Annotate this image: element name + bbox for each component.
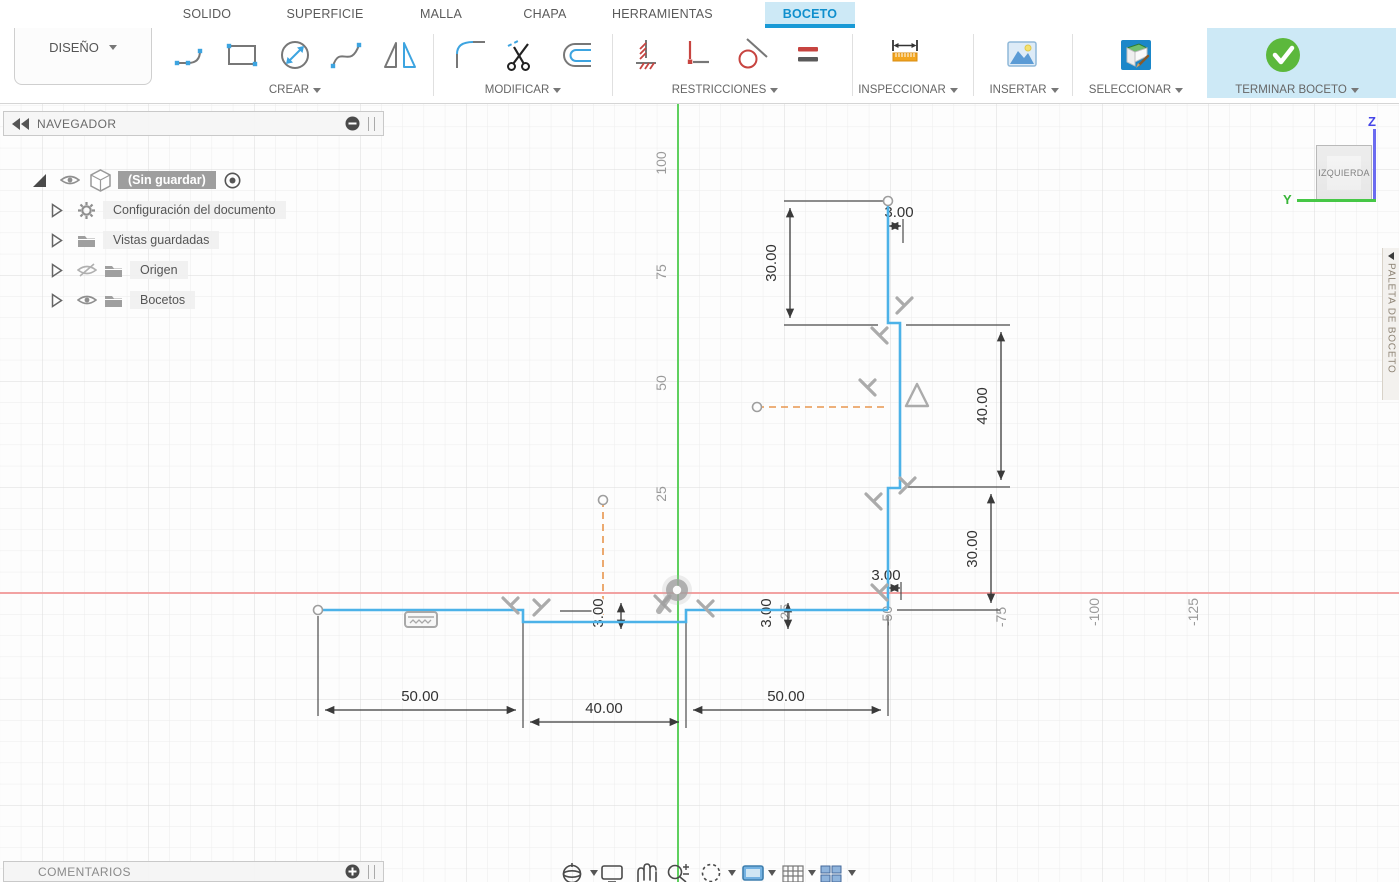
tree-item-label[interactable]: Vistas guardadas — [103, 231, 219, 249]
mirror-tool-button[interactable] — [378, 32, 422, 78]
circle-tool-button[interactable] — [273, 32, 317, 78]
line-tool-button[interactable] — [168, 32, 212, 78]
chevron-down-icon — [553, 88, 561, 93]
group-label-restricciones[interactable]: RESTRICCIONES — [645, 84, 805, 100]
x-tick-m25: -25 — [777, 604, 793, 624]
tree-row-saved-views[interactable]: Vistas guardadas — [51, 228, 219, 252]
select-tool-button[interactable] — [1114, 32, 1158, 78]
viewcube-y-label: Y — [1283, 192, 1292, 207]
viewcube-y-axis — [1297, 199, 1376, 202]
y-tick-75: 75 — [653, 264, 669, 280]
trim-tool-icon — [504, 36, 542, 74]
collapsed-arrow-icon[interactable] — [51, 293, 63, 308]
dim-30-top[interactable]: 30.00 — [763, 244, 780, 282]
dim-3-bottomright[interactable]: 3.00 — [871, 567, 900, 584]
add-comment-icon[interactable] — [345, 864, 360, 879]
insert-image-button[interactable] — [1000, 32, 1044, 78]
fix-constraint-icon[interactable] — [405, 612, 437, 627]
gear-icon — [77, 201, 96, 220]
dim-30-right[interactable]: 30.00 — [964, 530, 981, 568]
viewcube-z-label: Z — [1368, 114, 1376, 129]
chevron-down-icon — [313, 88, 321, 93]
collapsed-arrow-icon[interactable] — [51, 263, 63, 278]
toolbar-separator — [433, 34, 434, 96]
tree-item-label[interactable]: Bocetos — [130, 291, 195, 309]
sketch-point[interactable] — [884, 197, 893, 206]
ribbon-toolbar: DISEÑO — [0, 28, 1399, 104]
select-tool-icon — [1117, 36, 1155, 74]
dim-40-bottom[interactable]: 40.00 — [585, 700, 623, 717]
group-label-terminar-boceto[interactable]: TERMINAR BOCETO — [1217, 84, 1377, 100]
vertical-horizontal-constraint-icon — [676, 36, 714, 74]
tree-row-origin[interactable]: Origen — [51, 258, 188, 282]
tangent-constraint-icon — [733, 36, 771, 74]
fit-dropdown-icon[interactable] — [728, 870, 736, 876]
group-label-text: INSPECCIONAR — [858, 84, 946, 96]
group-label-text: MODIFICAR — [485, 84, 550, 96]
offset-tool-icon — [558, 36, 596, 74]
rectangle-tool-button[interactable] — [220, 32, 264, 78]
tab-superficie[interactable]: SUPERFICIE — [283, 2, 367, 28]
y-tick-25: 25 — [653, 486, 669, 502]
viewcube-face-label[interactable]: IZQUIERDA — [1318, 168, 1370, 178]
navigator-panel: NAVEGADOR (Sin guardar) — [3, 111, 384, 336]
eye-hidden-icon[interactable] — [77, 262, 97, 278]
group-label-text: RESTRICCIONES — [672, 84, 767, 96]
rectangle-tool-icon — [223, 36, 261, 74]
group-label-modificar[interactable]: MODIFICAR — [443, 84, 603, 100]
document-name-label[interactable]: (Sin guardar) — [118, 171, 216, 189]
tree-row-document-settings[interactable]: Configuración del documento — [51, 198, 286, 222]
hide-panel-icon[interactable] — [345, 116, 360, 131]
vertical-horizontal-constraint-button[interactable] — [673, 32, 717, 78]
group-label-text: TERMINAR BOCETO — [1235, 84, 1347, 96]
folder-icon — [104, 263, 123, 278]
spline-tool-button[interactable] — [325, 32, 369, 78]
chevron-down-icon — [1175, 88, 1183, 93]
navigation-toolbar-icons — [558, 862, 860, 882]
workspace-tab-bar: SOLIDO SUPERFICIE MALLA CHAPA HERRAMIENT… — [0, 0, 1399, 28]
tab-solido[interactable]: SOLIDO — [172, 2, 242, 28]
display-dropdown-icon[interactable] — [768, 870, 776, 876]
navigator-header[interactable]: NAVEGADOR — [3, 111, 384, 136]
mirror-tool-icon — [381, 36, 419, 74]
sketch-palette-label: PALETA DE BOCETO — [1386, 263, 1397, 374]
x-tick-m100: -100 — [1086, 598, 1102, 626]
grid-dropdown-icon[interactable] — [808, 870, 816, 876]
zoom-icon[interactable] — [669, 864, 690, 882]
activate-radio-icon[interactable] — [224, 172, 241, 189]
collapsed-arrow-icon[interactable] — [51, 233, 63, 248]
y-tick-50: 50 — [653, 375, 669, 391]
tree-row-document[interactable]: (Sin guardar) — [33, 168, 241, 192]
viewcube-z-axis — [1373, 129, 1376, 202]
circle-tool-icon — [276, 36, 314, 74]
look-at-icon[interactable] — [602, 866, 622, 882]
dim-40-right[interactable]: 40.00 — [974, 387, 991, 425]
display-settings-icon[interactable] — [743, 866, 763, 880]
dim-50-right[interactable]: 50.00 — [767, 688, 805, 705]
offset-tool-button[interactable] — [555, 32, 599, 78]
group-label-crear[interactable]: CREAR — [215, 84, 375, 100]
tree-row-sketches[interactable]: Bocetos — [51, 288, 195, 312]
viewports-icon[interactable] — [821, 866, 841, 882]
insert-image-icon — [1003, 36, 1041, 74]
sketch-point[interactable] — [753, 403, 762, 412]
folder-icon — [104, 293, 123, 308]
fit-view-icon[interactable] — [703, 865, 720, 882]
sketch-point[interactable] — [599, 496, 608, 505]
group-label-seleccionar[interactable]: SELECCIONAR — [1056, 84, 1216, 100]
x-tick-m125: -125 — [1185, 598, 1201, 626]
tab-herramientas[interactable]: HERRAMIENTAS — [612, 2, 710, 28]
chevron-down-icon — [1351, 88, 1359, 93]
panel-grip-handle[interactable] — [368, 865, 375, 879]
group-label-text: CREAR — [269, 84, 309, 96]
tangent-constraint-button[interactable] — [730, 32, 774, 78]
line-tool-icon — [171, 36, 209, 74]
collapsed-arrow-icon[interactable] — [51, 203, 63, 218]
tree-item-label[interactable]: Configuración del documento — [103, 201, 286, 219]
expand-left-icon — [1388, 252, 1394, 260]
orbit-dropdown-icon[interactable] — [590, 870, 598, 876]
tab-malla[interactable]: MALLA — [408, 2, 474, 28]
grid-settings-icon[interactable] — [783, 866, 803, 882]
chevron-down-icon — [109, 45, 117, 50]
tab-boceto[interactable]: BOCETO — [765, 2, 855, 28]
navigation-toolbar — [558, 862, 860, 882]
measure-tool-icon — [886, 36, 924, 74]
collapse-panel-icon[interactable] — [12, 118, 29, 130]
toolbar-separator — [612, 34, 613, 96]
tree-item-label[interactable]: Origen — [130, 261, 188, 279]
fillet-tool-icon — [451, 36, 489, 74]
finish-sketch-check-icon — [1261, 33, 1305, 77]
trim-tool-button[interactable] — [501, 32, 545, 78]
fillet-tool-button[interactable] — [448, 32, 492, 78]
viewcube[interactable]: IZQUIERDA — [1316, 145, 1372, 201]
spline-tool-icon — [328, 36, 366, 74]
dim-3-web-right[interactable]: 3.00 — [758, 598, 775, 627]
fixed-constraint-icon — [627, 36, 665, 74]
measure-tool-button[interactable] — [883, 32, 927, 78]
tab-chapa[interactable]: CHAPA — [511, 2, 579, 28]
finish-sketch-button[interactable] — [1261, 32, 1305, 78]
group-label-text: INSERTAR — [989, 84, 1046, 96]
equal-constraint-button[interactable] — [786, 32, 830, 78]
viewports-dropdown-icon[interactable] — [848, 870, 856, 876]
sketch-palette-tab[interactable]: PALETA DE BOCETO — [1382, 248, 1399, 400]
panel-grip-handle[interactable] — [368, 117, 375, 131]
comments-title: COMENTARIOS — [38, 865, 337, 879]
folder-icon — [77, 233, 96, 248]
document-cube-icon — [89, 169, 112, 192]
orbit-icon[interactable] — [564, 863, 581, 882]
navigator-title: NAVEGADOR — [37, 117, 337, 131]
eye-icon[interactable] — [77, 293, 97, 307]
design-dropdown-label: DISEÑO — [49, 40, 99, 55]
equal-constraint-icon — [789, 36, 827, 74]
comments-panel[interactable]: COMENTARIOS — [3, 861, 384, 882]
pan-hand-icon[interactable] — [638, 864, 656, 882]
dim-50-left[interactable]: 50.00 — [401, 688, 439, 705]
eye-icon[interactable] — [60, 173, 80, 187]
expand-arrow-icon[interactable] — [33, 174, 46, 187]
y-tick-100: 100 — [653, 151, 669, 175]
sketch-point[interactable] — [314, 606, 323, 615]
fixed-constraint-button[interactable] — [624, 32, 668, 78]
chevron-down-icon — [770, 88, 778, 93]
group-label-text: SELECCIONAR — [1089, 84, 1171, 96]
